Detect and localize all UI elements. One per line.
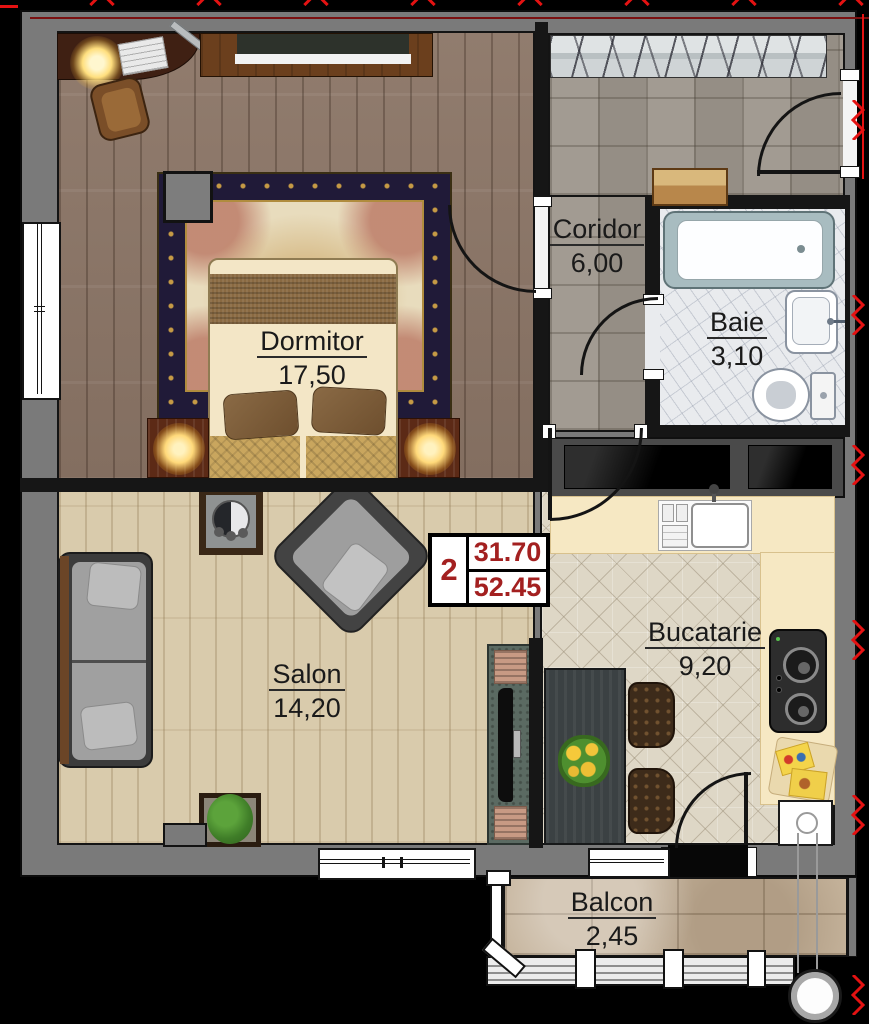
sink-compartment-2: [676, 504, 688, 522]
room-label-dormitor: Dormitor 17,50: [232, 327, 392, 392]
entry-jamb-bottom: [840, 166, 860, 178]
plant: [207, 794, 253, 844]
salon-wall-step: [163, 823, 207, 847]
bed-quilt-right: [306, 436, 396, 480]
room-name-dormitor: Dormitor: [257, 327, 367, 358]
cup-2: [226, 531, 236, 541]
registration-zigzag-right-1: [851, 100, 865, 140]
toilet-button: [820, 392, 827, 399]
nightstand-lamp-glow-right: [404, 423, 456, 475]
bedroom-window: [22, 222, 61, 400]
side-table: [199, 488, 263, 555]
balcony-door-leaf: [744, 772, 748, 845]
nightstand-lamp-glow-left: [153, 423, 205, 475]
sideboard: [200, 33, 433, 77]
bed-blanket-band: [210, 274, 396, 324]
sink-compartment-1: [662, 504, 674, 522]
burner-small: [785, 693, 817, 725]
desk-chair-cushion: [100, 86, 143, 133]
kitchen-sink-unit: [658, 500, 752, 551]
burner-large-center: [798, 662, 810, 674]
kitchen-window-rail: [590, 859, 664, 863]
corridor-kitchen-door-leaf: [548, 428, 552, 520]
entry-door-leaf: [757, 170, 840, 174]
bed-pillow-right: [311, 386, 387, 436]
registration-zigzag-right-4: [851, 620, 865, 660]
room-area-coridor: 6,00: [535, 247, 659, 279]
shoe-stool: [652, 168, 728, 206]
railing-post-3: [747, 950, 766, 988]
food-pack-2: [788, 768, 827, 800]
entry-wardrobe-hatch: [550, 35, 827, 78]
sofa-pillow-bottom: [80, 701, 139, 751]
railing-post-2: [663, 949, 684, 989]
cup-3: [238, 528, 248, 538]
registration-zigzag-right-6: [851, 975, 865, 1015]
kitchen-window: [588, 848, 670, 878]
dining-chair-2: [628, 768, 675, 834]
sideboard-strip: [235, 54, 411, 64]
room-name-salon: Salon: [269, 660, 344, 691]
tv-stand: [513, 730, 521, 758]
sofa: [58, 552, 153, 768]
room-label-salon: Salon 14,20: [237, 660, 377, 725]
tv: [498, 688, 513, 802]
bathtub: [663, 211, 835, 289]
sofa-cushion-split: [72, 660, 146, 663]
wall-column: [163, 171, 213, 223]
balcony-door-gap: [668, 845, 748, 877]
boiler-box: [778, 800, 833, 846]
room-area-baie: 3,10: [687, 340, 787, 372]
salon-window-tick-1: [382, 857, 385, 868]
room-label-balcon: Balcon 2,45: [542, 888, 682, 953]
downpipe-circle: [788, 969, 842, 1023]
burner-large: [783, 647, 819, 683]
bath-faucet-base: [827, 318, 834, 325]
sofa-pillow-top: [86, 561, 142, 610]
room-name-baie: Baie: [707, 308, 767, 339]
unit-areas: 31.70 52.45: [469, 537, 546, 603]
room-label-baie: Baie 3,10: [687, 308, 787, 373]
room-label-coridor: Coridor 6,00: [535, 215, 659, 280]
railing-post-1: [575, 949, 596, 989]
floor-plan-canvas: Dormitor 17,50 Coridor 6,00 Baie 3,10 Sa…: [0, 0, 869, 1024]
room-area-balcon: 2,45: [542, 920, 682, 952]
registration-line-right: [862, 14, 864, 179]
room-area-bucatarie: 9,20: [630, 650, 780, 682]
drain-pipe-line-1: [797, 833, 799, 973]
toilet-bowl-inner: [766, 381, 796, 409]
registration-line-top: [30, 17, 869, 19]
unit-area-box: 2 31.70 52.45: [428, 533, 550, 607]
plant-pot: [199, 793, 261, 847]
wall-bedroom-salon: [20, 478, 548, 492]
room-name-coridor: Coridor: [550, 215, 645, 246]
kitchen-faucet: [709, 484, 719, 494]
sideboard-top: [237, 34, 409, 54]
cup-1: [214, 527, 224, 537]
flower-bouquet: [558, 735, 610, 787]
registration-zigzag-right-2: [851, 295, 865, 335]
room-label-bucatarie: Bucatarie 9,20: [630, 618, 780, 683]
bed-quilt-left: [210, 436, 300, 480]
dining-chair-1: [628, 682, 675, 748]
room-name-balcon: Balcon: [568, 888, 657, 919]
sofa-wood-edge: [60, 556, 69, 764]
salon-window: [318, 848, 476, 880]
tv-cabinet: [487, 644, 533, 845]
room-area-salon: 14,20: [237, 692, 377, 724]
cabinet-glass-right: [748, 445, 832, 489]
balcony-door-jamb-right: [747, 847, 757, 877]
bedroom-window-tick: [34, 306, 45, 312]
room-name-bucatarie: Bucatarie: [645, 618, 765, 649]
toilet-bowl: [752, 368, 810, 422]
speaker-bottom: [494, 806, 527, 840]
wall-salon-kitchen: [529, 638, 543, 848]
stove-knob-2: [776, 687, 782, 693]
boiler-circle: [796, 812, 818, 834]
registration-dash-topleft: [0, 5, 18, 8]
balcony-partition-jamb: [486, 870, 511, 886]
entry-jamb-top: [840, 69, 860, 81]
salon-window-rail: [320, 859, 470, 864]
unit-area-bottom: 52.45: [469, 572, 546, 604]
drain-pipe-line-2: [816, 833, 818, 973]
speaker-top: [494, 650, 527, 684]
bath-sink: [785, 290, 838, 354]
wall-bath-kitchen: [637, 425, 850, 437]
sink-drawers: [662, 525, 688, 548]
registration-zigzag-right-5: [851, 795, 865, 835]
salon-window-tick-2: [400, 857, 403, 868]
balcony-right-wall-stub: [848, 877, 857, 957]
bed-pillow-left: [222, 389, 299, 440]
hatch-lines: [551, 36, 826, 77]
unit-number: 2: [432, 537, 469, 603]
registration-zigzag-right-3: [851, 445, 865, 485]
room-area-dormitor: 17,50: [232, 359, 392, 391]
unit-area-top: 31.70: [469, 537, 546, 572]
bath-sink-basin: [792, 297, 830, 345]
toilet-cistern: [810, 372, 836, 420]
sink-basin: [691, 503, 749, 548]
bathtub-drain: [797, 245, 805, 253]
burner-small-center: [798, 706, 809, 717]
